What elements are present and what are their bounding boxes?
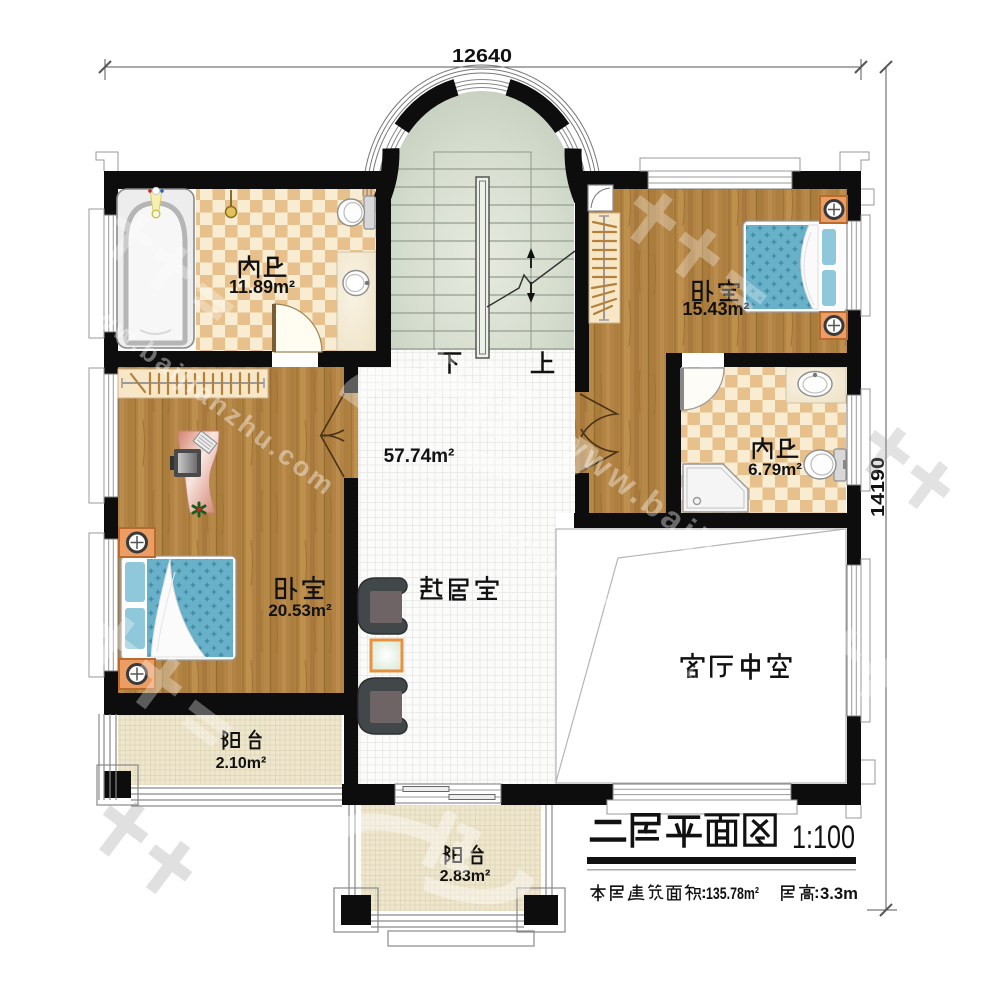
svg-text:3.3m: 3.3m [820,884,858,903]
svg-text:57.74m²: 57.74m² [384,446,455,467]
svg-text:2.10m²: 2.10m² [216,755,267,772]
svg-text:1:100: 1:100 [792,819,855,855]
svg-text:6.79m²: 6.79m² [748,460,802,479]
svg-text:135.78m²: 135.78m² [706,884,759,903]
svg-text::: : [814,883,820,902]
svg-text:11.89m²: 11.89m² [229,277,295,297]
svg-text:20.53m²: 20.53m² [268,601,332,620]
svg-text:12640: 12640 [452,46,512,66]
